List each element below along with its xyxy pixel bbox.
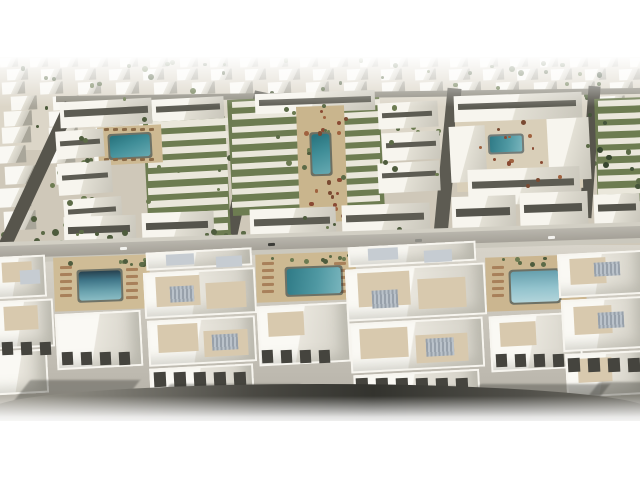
c1-tree: [176, 168, 181, 173]
p1-lounger: [126, 282, 138, 285]
f3-pergola: [372, 289, 399, 308]
p2-hedge: [290, 258, 294, 262]
f4-pergola: [598, 311, 625, 328]
p2-hedge: [342, 257, 345, 260]
p3-lounger: [492, 273, 504, 276]
p1-hedge: [130, 263, 133, 266]
p1-lounger: [60, 266, 72, 269]
c3-plaza-furniture: [507, 161, 511, 165]
p2-hedge: [338, 256, 342, 260]
road-hedge: [211, 229, 216, 234]
haze-top: [0, 57, 640, 107]
road-hedge: [122, 230, 128, 236]
f2b-window: [119, 352, 131, 366]
c2-tree: [302, 165, 307, 170]
c2-umbrella: [309, 202, 313, 206]
c4-palm: [588, 113, 592, 117]
distant-villa: [0, 145, 26, 164]
p1-lounger: [60, 273, 72, 276]
f3b-window: [534, 354, 546, 368]
f4-pergola: [594, 261, 621, 276]
p3-hedge: [541, 262, 545, 266]
f3b-window: [496, 354, 508, 368]
c1-lounger: [104, 128, 109, 131]
p1-hedge: [141, 262, 145, 266]
c1-lounger: [113, 128, 118, 131]
c2-tree: [292, 111, 296, 115]
aerial-render-image: [0, 0, 640, 480]
f2-roof-beige: [205, 281, 246, 309]
c2-tree: [307, 152, 311, 156]
p1-lounger: [126, 275, 138, 278]
scene-canvas: [0, 0, 640, 480]
c1-lounger: [140, 158, 145, 161]
f2b-window: [81, 352, 93, 366]
c3-plaza-furniture: [508, 136, 511, 139]
c2-tree: [276, 135, 279, 138]
p2-lounger: [262, 276, 274, 279]
c2-umbrella: [337, 131, 341, 135]
f4-window: [608, 358, 621, 373]
c2-umbrella: [318, 131, 322, 135]
f1-roof-gray: [20, 269, 41, 284]
c2-pool: [311, 134, 330, 175]
f2c-window: [262, 350, 274, 364]
f2-roof-beige: [157, 323, 198, 353]
c1-tree: [85, 158, 90, 163]
f2-roof-gray: [166, 253, 195, 265]
f2c-window: [319, 350, 331, 364]
c4-palm: [635, 184, 640, 189]
car: [120, 247, 127, 250]
c2-tree: [341, 175, 346, 180]
p3-lounger: [492, 287, 504, 290]
p1-hedge: [123, 259, 128, 264]
c3-plaza-furniture: [493, 158, 496, 161]
distant-villa: [4, 110, 33, 126]
f4-window: [628, 358, 640, 373]
c2-umbrella: [331, 195, 334, 198]
c1-pool: [109, 134, 150, 158]
f2b-window: [62, 352, 74, 366]
p3-lounger: [492, 266, 504, 269]
f1-window: [21, 342, 33, 356]
f3-pergola: [426, 337, 455, 356]
c2-umbrella: [320, 110, 323, 113]
f3-roof-beige: [417, 277, 467, 309]
road-hedge: [79, 230, 84, 235]
c1-tree: [157, 165, 162, 170]
f3b-window: [515, 354, 527, 368]
f2-pergola: [212, 333, 239, 350]
p2-lounger: [262, 269, 274, 272]
c4-palm: [630, 167, 634, 171]
f3-roof-gray: [424, 249, 453, 262]
c2-tree: [392, 166, 397, 171]
c1-tree: [146, 199, 151, 204]
c3-plaza-furniture: [504, 136, 507, 139]
c2-umbrella: [304, 131, 309, 136]
c4-townhouse-row: [598, 137, 640, 145]
c2-tree: [286, 160, 291, 165]
f2-roof-gray: [216, 255, 243, 267]
f3b-roof-beige: [499, 321, 536, 347]
p3-hedge: [530, 262, 535, 267]
car: [548, 236, 555, 239]
c4-palm: [636, 178, 640, 184]
c1-lounger: [131, 128, 136, 131]
f3-roof-gray: [368, 247, 399, 261]
c2-umbrella: [315, 189, 318, 192]
c3-plaza-furniture: [536, 178, 540, 182]
f4-window: [568, 358, 581, 373]
c4-palm: [603, 162, 609, 168]
c2-tree: [327, 130, 330, 133]
f1-window: [2, 342, 14, 356]
f3-roof-beige: [359, 327, 409, 359]
f2-pergola: [170, 285, 195, 302]
p1-lounger: [126, 268, 138, 271]
car: [415, 239, 422, 242]
c3-plaza-furniture: [521, 120, 525, 124]
p1-hedge: [119, 260, 122, 263]
c1-lounger: [149, 158, 154, 161]
p3-lounger: [492, 280, 504, 283]
frame-top: [0, 0, 640, 57]
p2-pool: [287, 267, 342, 295]
p1-lounger: [60, 280, 72, 283]
c2-tree: [284, 107, 289, 112]
c2-tree: [435, 173, 439, 177]
c3-plaza-furniture: [497, 128, 500, 131]
c1-lounger: [131, 158, 136, 161]
p3-lounger: [492, 294, 504, 297]
midrise-5-windows: [598, 203, 636, 211]
c3-plaza-furniture: [532, 147, 534, 149]
p2-lounger: [262, 290, 274, 293]
c1-lounger: [122, 128, 127, 131]
f3b-window: [553, 354, 565, 368]
c3-plaza-furniture: [479, 146, 482, 149]
p1-lounger: [60, 287, 72, 290]
p3-pool: [510, 270, 559, 303]
p1-lounger: [126, 289, 138, 292]
c1-tree: [67, 200, 73, 206]
f2c-window: [281, 350, 293, 364]
c4-palm: [603, 121, 607, 125]
f2c-roof-beige: [267, 311, 304, 337]
p1-lounger: [126, 296, 138, 299]
p3-hedge: [502, 258, 505, 261]
p3-hedge: [515, 257, 520, 262]
p1-pool: [79, 270, 122, 300]
distant-villa: [2, 126, 32, 143]
c1-lounger: [113, 158, 118, 161]
car: [268, 243, 275, 246]
f2b-window: [100, 352, 112, 366]
f1-window: [40, 342, 52, 356]
c1-lounger: [149, 128, 154, 131]
f2-window: [154, 372, 167, 388]
c2-umbrella: [327, 180, 331, 184]
p1-lounger: [60, 294, 72, 297]
f1-roof-beige: [3, 305, 38, 331]
p2-hedge: [304, 259, 309, 264]
c4-palm: [626, 149, 631, 154]
p2-lounger: [262, 262, 274, 265]
f2c-window: [300, 350, 312, 364]
p2-lounger: [262, 283, 274, 286]
c2-tree: [333, 223, 336, 226]
c2-umbrella: [344, 117, 348, 121]
c4-townhouse-row: [598, 112, 640, 120]
c1-tree: [79, 136, 84, 141]
frame-bottom: [0, 421, 640, 480]
c2-umbrella: [328, 191, 332, 195]
c1-lounger: [140, 128, 145, 131]
c1-lounger: [122, 158, 127, 161]
f4-window: [588, 358, 601, 373]
left-tree: [52, 229, 59, 236]
